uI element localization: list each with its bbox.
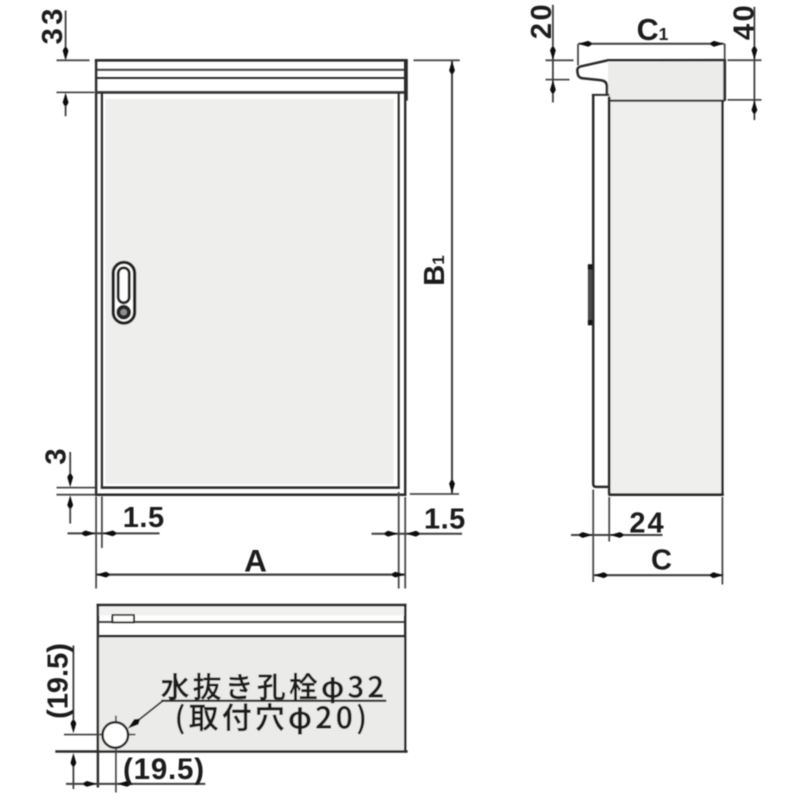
svg-text:1.5: 1.5 <box>123 502 165 534</box>
svg-text:(19.5): (19.5) <box>42 643 74 719</box>
svg-text:33: 33 <box>37 5 69 44</box>
svg-text:20: 20 <box>526 2 558 39</box>
svg-text:A: A <box>244 543 267 579</box>
svg-text:(19.5): (19.5) <box>123 753 205 786</box>
svg-text:24: 24 <box>629 507 665 539</box>
svg-text:3: 3 <box>40 448 72 464</box>
svg-text:1.5: 1.5 <box>424 504 466 536</box>
svg-text:C: C <box>651 545 672 577</box>
svg-text:40: 40 <box>728 3 760 40</box>
